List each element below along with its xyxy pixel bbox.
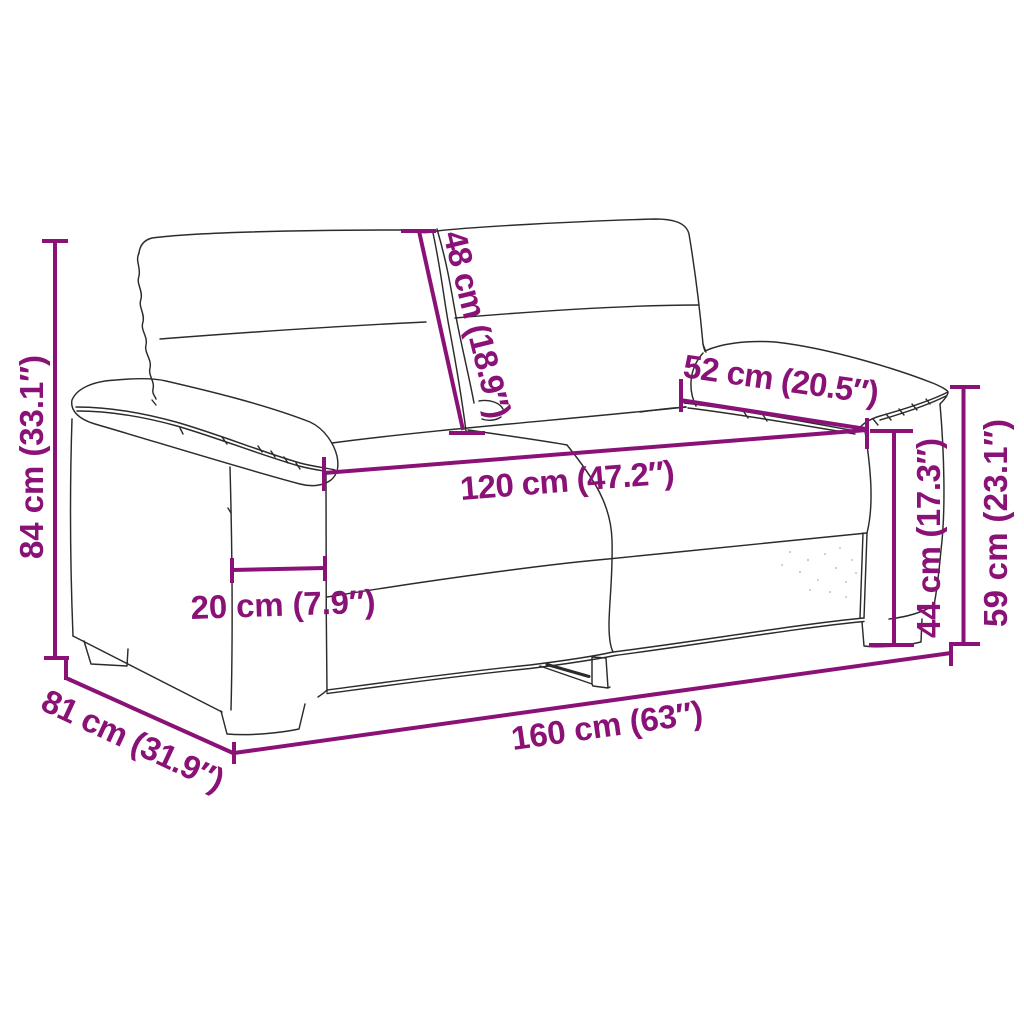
svg-text:44 cm (17.3″): 44 cm (17.3″) [910,438,947,638]
svg-text:59 cm (23.1″): 59 cm (23.1″) [977,419,1014,627]
svg-text:84 cm (33.1″): 84 cm (33.1″) [13,355,50,559]
svg-text:20 cm (7.9″): 20 cm (7.9″) [190,583,376,626]
